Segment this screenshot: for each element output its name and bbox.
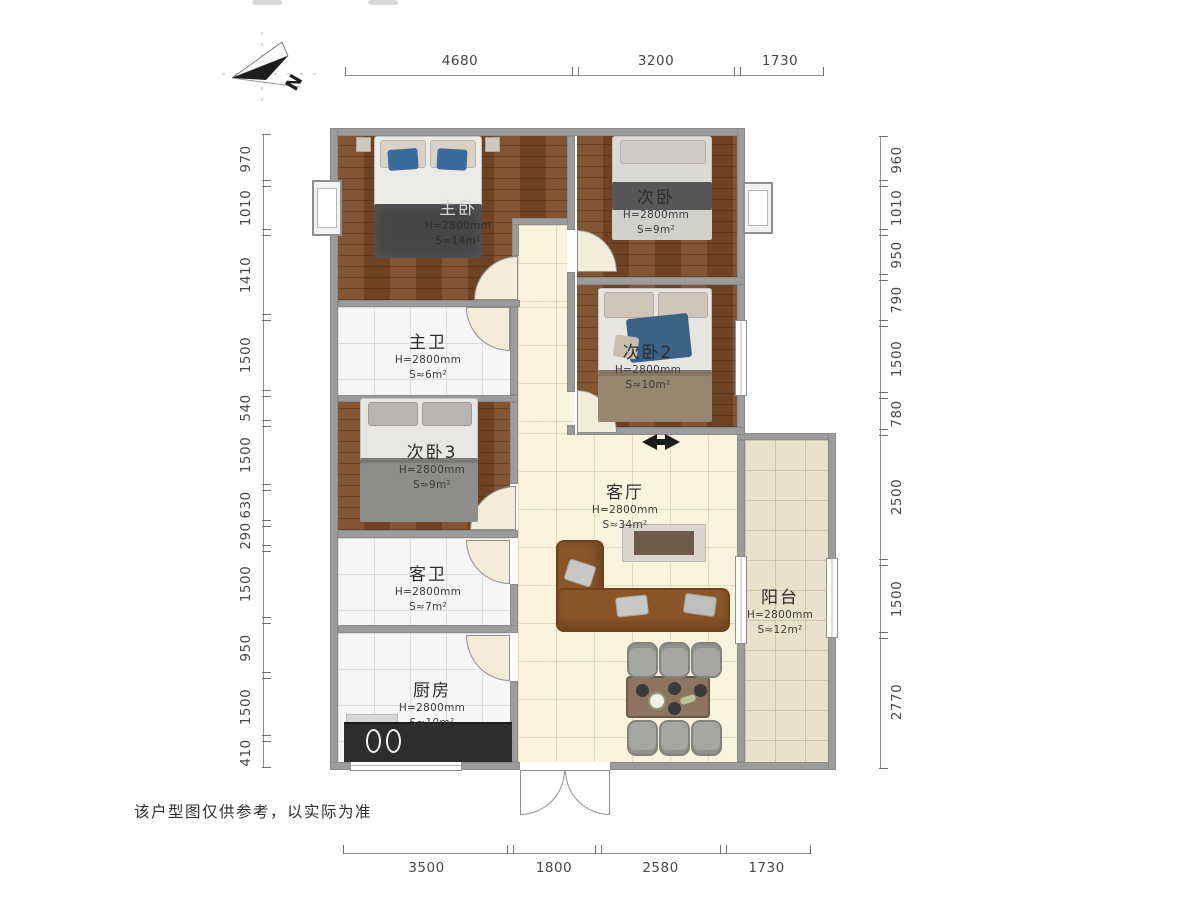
dimension-tick [343, 845, 344, 854]
dimension-label: 1010 [238, 189, 254, 225]
dimension-tick [879, 320, 888, 321]
dimension-tick [262, 484, 271, 485]
dimension-tick [262, 390, 271, 391]
dimension-tick [879, 392, 888, 393]
wall [330, 128, 745, 136]
kitchen-counter [344, 722, 512, 762]
dimension-label: 970 [238, 145, 254, 172]
dimension-tick [572, 67, 573, 76]
wall [512, 225, 519, 256]
dimension-label: 790 [889, 286, 905, 313]
wall [737, 642, 745, 762]
wall [510, 307, 518, 395]
disclaimer-text: 该户型图仅供参考，以实际为准 [134, 800, 372, 822]
north-letter: N [282, 71, 308, 95]
dimension-tick [879, 559, 888, 560]
floorplan-canvas: N 46803200173035001800258017309701010141… [0, 0, 1200, 900]
dimension-tick [810, 845, 811, 854]
dimension-tick [879, 638, 888, 639]
dimension-label: 1500 [238, 337, 254, 373]
dimension-tick [262, 134, 271, 135]
dimension-tick [262, 678, 271, 679]
dimension-tick [262, 623, 271, 624]
dimension-line [880, 136, 881, 768]
wall [338, 625, 518, 633]
bay-window [743, 182, 773, 234]
floor-hallway-niche [518, 225, 567, 307]
floor-balcony [745, 440, 828, 762]
dimension-label: 630 [238, 491, 254, 518]
dimension-label: 2500 [889, 479, 905, 515]
entry-door-right [565, 770, 610, 815]
dimension-label: 290 [238, 522, 254, 549]
dimension-tick [720, 845, 721, 854]
dimension-tick [262, 229, 271, 230]
dining-chair [691, 642, 722, 678]
dimension-label: 2770 [889, 683, 905, 719]
dimension-tick [262, 314, 271, 315]
bed-4 [360, 398, 478, 522]
dimension-label: 1500 [238, 688, 254, 724]
dimension-tick [262, 672, 271, 673]
wall [510, 402, 518, 484]
dimension-tick [879, 565, 888, 566]
window [735, 320, 747, 396]
wall [338, 300, 520, 307]
dimension-tick [262, 526, 271, 527]
dimension-tick [345, 67, 346, 76]
floor-hallway [518, 307, 574, 433]
dimension-label: 410 [238, 739, 254, 766]
dimension-label: 1800 [536, 860, 572, 876]
wall [567, 272, 575, 392]
nightstand [356, 137, 371, 152]
dimension-label: 780 [889, 400, 905, 427]
dimension-tick [262, 396, 271, 397]
dining-chair [691, 720, 722, 756]
dimension-tick [734, 67, 735, 76]
dimension-label: 1500 [889, 580, 905, 616]
dimension-tick [507, 845, 508, 854]
dining-table [626, 676, 710, 718]
dimension-label: 1010 [889, 189, 905, 225]
dimension-label: 1500 [238, 437, 254, 473]
dimension-tick [879, 274, 888, 275]
dimension-label: 540 [238, 394, 254, 421]
dining-chair [659, 720, 690, 756]
dimension-label: 960 [889, 146, 905, 173]
dimension-tick [879, 186, 888, 187]
north-arrow-icon: N [222, 30, 322, 110]
ui-fragment [368, 0, 398, 5]
dining-chair [627, 720, 658, 756]
dimension-tick [262, 180, 271, 181]
dimension-tick [262, 235, 271, 236]
dimension-tick [879, 326, 888, 327]
dimension-label: 950 [238, 634, 254, 661]
dimension-label: 1730 [748, 860, 784, 876]
dimension-tick [879, 229, 888, 230]
window [826, 558, 838, 638]
entry-door-left [520, 770, 565, 815]
dimension-tick [262, 490, 271, 491]
dimension-tick [879, 435, 888, 436]
dimension-line [345, 75, 823, 76]
dimension-tick [262, 617, 271, 618]
dimension-label: 4680 [442, 53, 478, 69]
dimension-label: 950 [889, 241, 905, 268]
dimension-label: 1500 [238, 566, 254, 602]
bay-window [312, 180, 342, 236]
dimension-tick [262, 420, 271, 421]
dimension-label: 2580 [642, 860, 678, 876]
wall [577, 277, 745, 285]
dimension-tick [740, 67, 741, 76]
ceiling-fan-icon [642, 432, 680, 452]
bed-master [374, 136, 482, 258]
dimension-tick [879, 398, 888, 399]
dimension-tick [262, 551, 271, 552]
dimension-label: 3500 [408, 860, 444, 876]
dimension-tick [262, 520, 271, 521]
dimension-tick [262, 767, 271, 768]
dining-chair [627, 642, 658, 678]
dimension-tick [879, 632, 888, 633]
dimension-tick [262, 735, 271, 736]
dimension-tick [879, 768, 888, 769]
dimension-tick [879, 429, 888, 430]
bed-3 [598, 288, 712, 422]
dimension-tick [262, 320, 271, 321]
wall [567, 425, 575, 435]
dimension-label: 1500 [889, 341, 905, 377]
wall [737, 440, 745, 558]
dimension-tick [262, 186, 271, 187]
dimension-tick [578, 67, 579, 76]
window [735, 556, 747, 644]
dimension-label: 3200 [638, 53, 674, 69]
dimension-tick [879, 280, 888, 281]
ui-fragment [252, 0, 282, 5]
dimension-label: 1410 [238, 256, 254, 292]
wall [737, 433, 836, 440]
dimension-tick [262, 545, 271, 546]
tv-console [622, 524, 706, 562]
bed-2 [612, 136, 712, 240]
wall [512, 218, 574, 225]
dimension-tick [879, 180, 888, 181]
dimension-tick [262, 741, 271, 742]
wall [338, 530, 518, 538]
dimension-tick [879, 136, 888, 137]
dimension-tick [513, 845, 514, 854]
wall [567, 136, 575, 230]
dimension-tick [726, 845, 727, 854]
dimension-tick [601, 845, 602, 854]
dimension-label: 1730 [762, 53, 798, 69]
dimension-tick [595, 845, 596, 854]
dimension-tick [262, 426, 271, 427]
dining-chair [659, 642, 690, 678]
dimension-tick [879, 235, 888, 236]
dimension-tick [823, 67, 824, 76]
nightstand [485, 137, 500, 152]
dimension-line [343, 853, 810, 854]
wall [610, 762, 836, 770]
